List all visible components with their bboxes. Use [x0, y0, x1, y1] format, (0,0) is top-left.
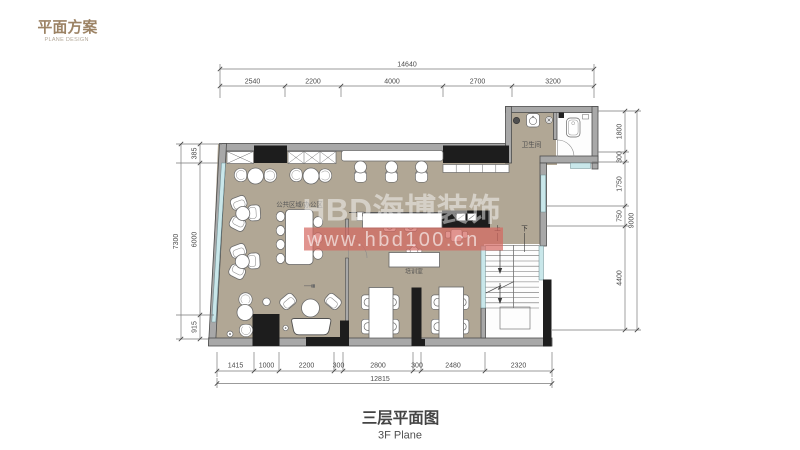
- svg-text:6000: 6000: [192, 232, 199, 248]
- svg-text:1415: 1415: [228, 363, 244, 370]
- svg-text:2320: 2320: [511, 363, 527, 370]
- svg-text:三层平面图: 三层平面图: [362, 409, 440, 427]
- svg-text:2540: 2540: [245, 79, 261, 86]
- svg-text:300: 300: [617, 151, 624, 163]
- svg-text:1800: 1800: [617, 124, 624, 140]
- svg-text:2200: 2200: [305, 79, 321, 86]
- svg-text:9000: 9000: [629, 213, 636, 229]
- svg-text:平面方案: 平面方案: [38, 18, 98, 36]
- svg-text:3F Plane: 3F Plane: [378, 430, 422, 442]
- svg-text:培训室: 培训室: [405, 268, 423, 276]
- svg-text:300: 300: [333, 363, 345, 370]
- svg-text:2200: 2200: [299, 363, 315, 370]
- svg-text:下: 下: [521, 225, 528, 233]
- svg-text:4400: 4400: [617, 270, 624, 286]
- svg-text:2480: 2480: [445, 363, 461, 370]
- svg-text:4000: 4000: [384, 79, 400, 86]
- svg-text:385: 385: [192, 148, 199, 160]
- svg-text:750: 750: [617, 210, 624, 222]
- svg-text:HBD海博装饰: HBD海博装饰: [303, 192, 501, 228]
- svg-text:3200: 3200: [545, 79, 561, 86]
- svg-text:915: 915: [192, 321, 199, 333]
- svg-text:2700: 2700: [470, 79, 486, 86]
- svg-text:14640: 14640: [397, 62, 417, 69]
- svg-text:PLANE DESIGN: PLANE DESIGN: [45, 37, 89, 43]
- svg-text:7300: 7300: [173, 234, 180, 250]
- svg-text:2800: 2800: [370, 363, 386, 370]
- svg-text:300: 300: [411, 363, 423, 370]
- svg-text:卫生间: 卫生间: [522, 140, 542, 149]
- svg-text:1000: 1000: [259, 363, 275, 370]
- svg-text:www.hbd100.cn: www.hbd100.cn: [306, 229, 479, 251]
- svg-text:12815: 12815: [370, 376, 390, 383]
- svg-text:1750: 1750: [617, 176, 624, 192]
